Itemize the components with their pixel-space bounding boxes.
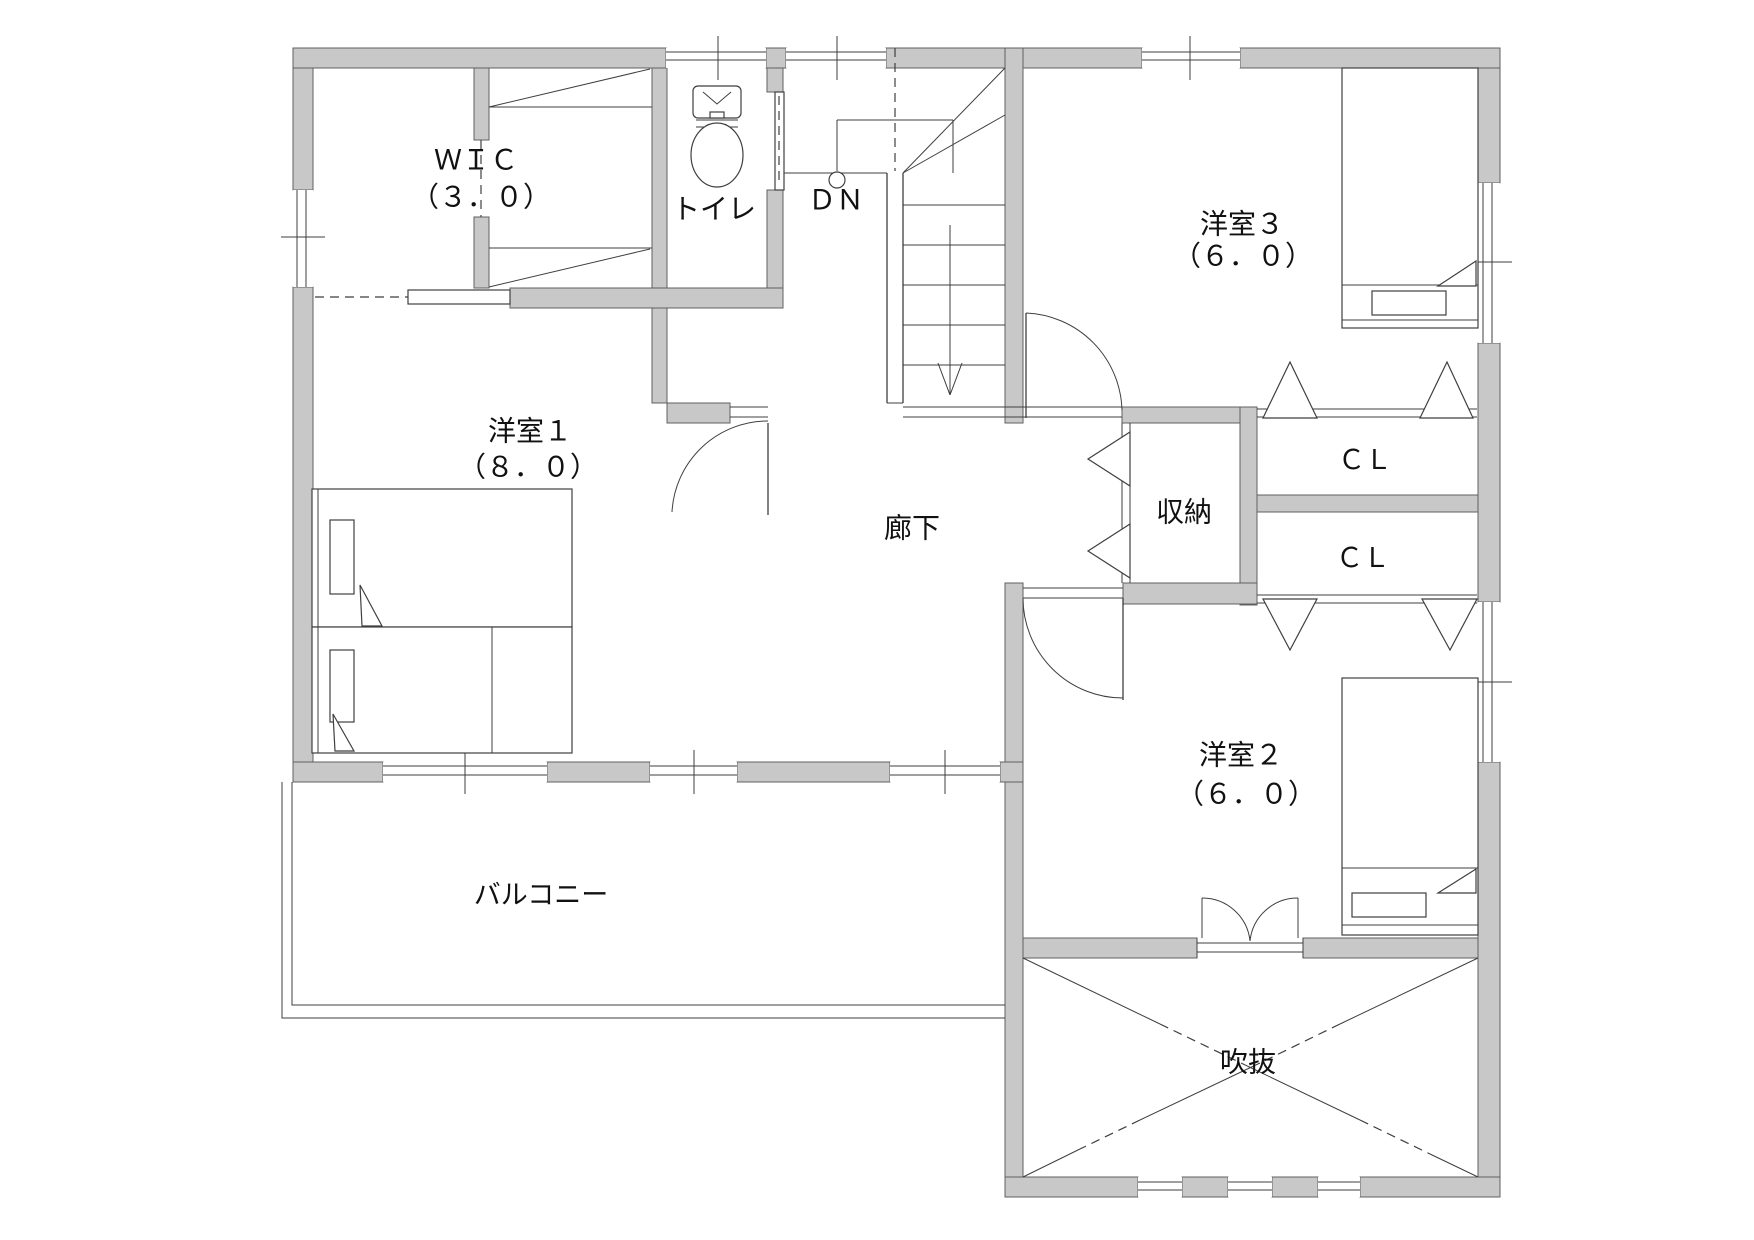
label-void: 吹抜 [1220,1046,1276,1077]
label-closet1: ＣＬ [1338,445,1392,475]
window-top-room3 [1142,36,1240,80]
window-top-stairs [786,36,886,80]
bed-room3 [1342,68,1478,328]
label-storage: 収納 [1156,496,1212,527]
window-left-wic [281,190,325,287]
window-bottom-hall-2 [890,750,1000,794]
door-toilet-sliding [775,92,784,190]
label-wic-size: （３．０） [411,181,551,212]
door-room2 [1023,588,1123,700]
label-room1-size: （８．０） [458,451,598,482]
label-hallway: 廊下 [884,512,940,543]
label-room1: 洋室１ [488,415,572,446]
label-toilet: トイレ [672,193,756,224]
label-balcony: バルコニー [474,880,608,910]
label-room2-size: （６．０） [1176,778,1316,809]
label-room3-size: （６．０） [1173,240,1313,271]
door-room3 [1026,313,1122,418]
door-closet1-folding [1257,362,1477,418]
window-bottom-room1 [383,750,547,794]
window-void-bottom-2 [1228,1177,1272,1197]
door-wic-sliding [315,290,510,304]
window-void-bottom-1 [1138,1177,1182,1197]
label-closet2: ＣＬ [1336,543,1390,573]
window-top-toilet [666,36,766,80]
door-storage-folding [1088,423,1130,583]
balcony-outline [282,782,1005,1018]
floor-plan-canvas: ＷＩＣ （３．０） トイレ ＤＮ 洋室３ （６．０） 洋室１ （８．０） 廊下 … [0,0,1754,1240]
bed-room2 [1342,678,1478,935]
label-dn: ＤＮ [808,184,864,215]
window-bottom-hall-1 [650,750,737,794]
bed-room1-b [312,627,572,753]
floor-plan-drawing: ＷＩＣ （３．０） トイレ ＤＮ 洋室３ （６．０） 洋室１ （８．０） 廊下 … [0,0,1754,1240]
door-closet2-folding [1257,595,1477,650]
label-wic: ＷＩＣ [434,144,518,175]
stairs [783,48,1122,417]
window-void-double-swing [1197,898,1303,958]
label-room3: 洋室３ [1200,208,1284,239]
bed-room1-a [312,489,572,627]
wic-shelf-symbols [489,69,652,287]
window-void-bottom-3 [1318,1177,1360,1197]
toilet-icon [691,86,743,187]
label-room2: 洋室２ [1199,739,1283,770]
